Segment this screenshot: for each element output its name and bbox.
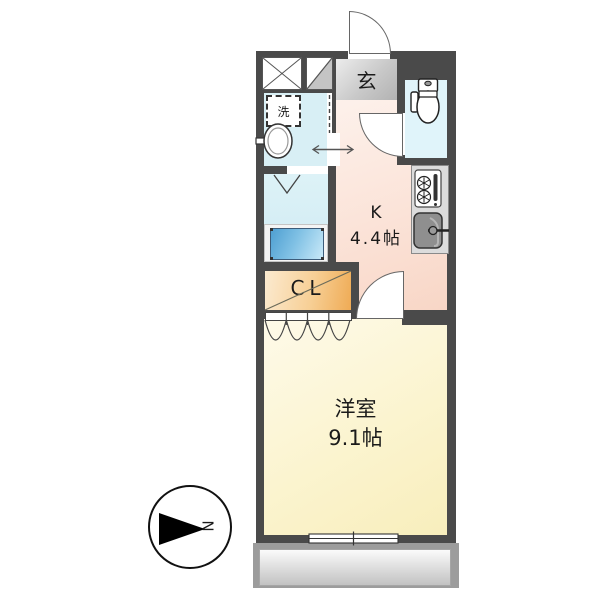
meter-box-cross-icon bbox=[263, 58, 301, 89]
sliding-door-track bbox=[327, 93, 332, 134]
kitchen-size: 4.4帖 bbox=[326, 226, 426, 252]
meter-box bbox=[262, 57, 302, 90]
entrance-genkan: 玄 bbox=[336, 59, 397, 101]
closet-door-track bbox=[265, 312, 352, 321]
tub-corner-dot bbox=[270, 257, 273, 260]
compass-north-label: N bbox=[199, 520, 217, 531]
tub-corner-dot bbox=[321, 257, 324, 260]
toilet-room bbox=[405, 80, 447, 158]
kitchen-name: K bbox=[326, 200, 426, 226]
balcony bbox=[253, 543, 459, 588]
entrance-label: 玄 bbox=[357, 65, 377, 94]
tub-corner-dot bbox=[321, 228, 324, 231]
entrance-door-swing bbox=[349, 11, 391, 54]
kitchen-label: K 4.4帖 bbox=[326, 200, 426, 253]
sliding-door-opening bbox=[327, 133, 340, 166]
pipe-space-icon bbox=[307, 58, 332, 89]
room-top-wall bbox=[402, 310, 447, 325]
laundry-label: 洗 bbox=[277, 103, 289, 120]
tub-corner-dot bbox=[270, 228, 273, 231]
floor-plan: 玄 洗 CL bbox=[0, 0, 600, 600]
pipe-space bbox=[306, 57, 333, 90]
bathtub bbox=[270, 228, 324, 260]
bath-folding-door bbox=[287, 166, 328, 174]
balcony-floor bbox=[259, 549, 451, 586]
compass: N bbox=[148, 485, 232, 569]
closet-label: CL bbox=[270, 276, 346, 300]
washing-machine-space: 洗 bbox=[266, 95, 301, 127]
western-room-label: 洋室 9.1帖 bbox=[264, 395, 447, 454]
western-room-size: 9.1帖 bbox=[264, 424, 447, 453]
western-room-name: 洋室 bbox=[264, 395, 447, 424]
